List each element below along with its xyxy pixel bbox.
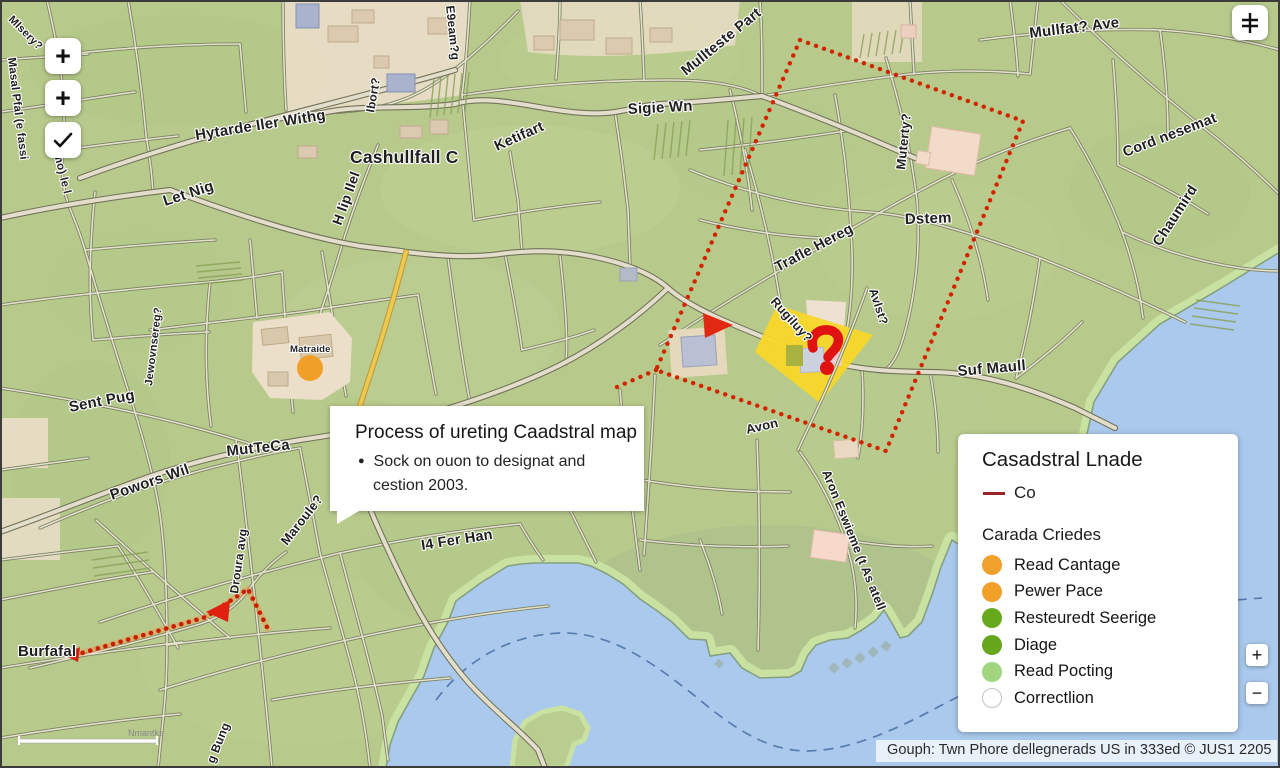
svg-text:Dstem: Dstem bbox=[905, 209, 952, 228]
svg-text:Cashullfall C: Cashullfall C bbox=[350, 147, 459, 167]
svg-text:Burfafal: Burfafal bbox=[18, 643, 76, 660]
svg-text:Matraide: Matraide bbox=[290, 344, 331, 355]
svg-text:Sigie Wn: Sigie Wn bbox=[627, 98, 693, 118]
svg-text:Nmantks: Nmantks bbox=[128, 728, 164, 738]
